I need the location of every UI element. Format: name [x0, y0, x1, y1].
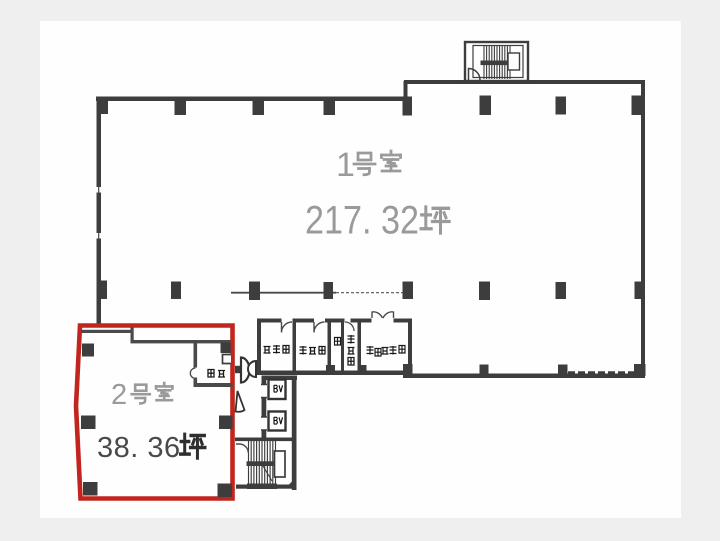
svg-text:2: 2 [111, 379, 127, 411]
svg-text:38. 36: 38. 36 [97, 432, 181, 464]
svg-text:217. 32: 217. 32 [305, 199, 419, 243]
